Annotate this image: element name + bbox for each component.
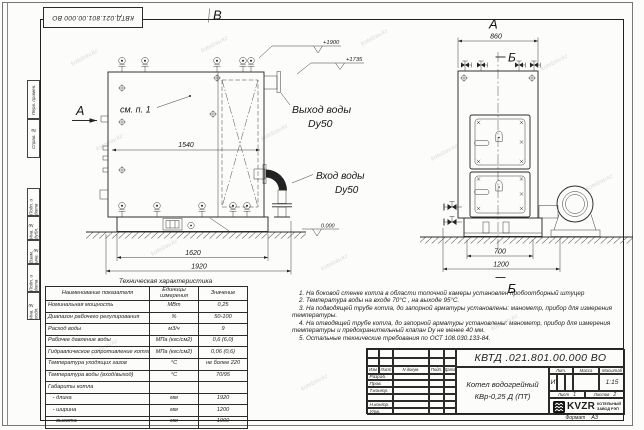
spec-row: Рабочее давление водыМПа (кгс/см2)0,6 (6… — [46, 335, 248, 347]
svg-text:А: А — [75, 104, 84, 118]
scale-label: Масштаб — [599, 367, 625, 374]
revision-grid: Изм Лист N докум. Подп. Дата Разраб. Про… — [367, 349, 456, 415]
svg-text:Dy50: Dy50 — [308, 118, 333, 130]
product-title-line2: КВр-0,25 Д (ПТ) — [475, 391, 531, 403]
document-number: КВТД .021.801.00.000 ВО — [456, 349, 625, 367]
lower-furnace-door — [470, 172, 530, 217]
spec-cell: 1200 — [199, 405, 248, 417]
spec-cell: Гидравлическое сопротивление котла — [46, 347, 150, 359]
spec-cell: мм — [150, 405, 199, 417]
logo-wordmark: KVZR — [567, 401, 595, 412]
safety-valves-top — [119, 57, 255, 72]
spec-table: Техническая характеристика Наименование … — [45, 277, 248, 429]
water-inlet-elbow — [254, 165, 292, 218]
sheet-cell: Лист 1 — [549, 391, 585, 398]
spec-cell: МПа (кгс/см2) — [150, 347, 199, 359]
spec-row: Температура воды (вход/выход)°С70/95 — [46, 370, 248, 382]
spec-cell: % — [150, 312, 199, 324]
spec-cell: Диапазон рабочего регулирования — [46, 312, 150, 324]
spec-cell: 50-100 — [199, 312, 248, 324]
mass-label: Масса — [573, 367, 599, 374]
spec-row: - высотамм1900 — [46, 416, 248, 428]
spec-cell: МПа (кгс/см2) — [150, 335, 199, 347]
spec-cell: °С — [150, 358, 199, 370]
front-view: 860 А Б 700 1200 Б — [420, 17, 633, 297]
spec-cell: Рабочее давление воды — [46, 335, 150, 347]
logo-caption: КОТЕЛЬНЫЙ ЗАВОД РЭП — [597, 402, 621, 411]
svg-text:см. п. 1: см. п. 1 — [120, 105, 151, 115]
format-strip: Формат А3 — [366, 414, 624, 421]
safety-valves-top-front — [461, 61, 541, 71]
format-label: Формат — [565, 415, 585, 421]
scale-value: 1:15 — [599, 374, 625, 391]
spec-cell: МВт — [150, 301, 199, 313]
svg-text:+1735: +1735 — [346, 57, 363, 63]
spec-cell: Температура воды (вход/выход) — [46, 370, 150, 382]
sheets-total: 2 — [613, 392, 616, 398]
svg-text:+1900: +1900 — [323, 40, 340, 46]
sign-label — [367, 394, 393, 401]
spec-cell: 1900 — [199, 416, 248, 428]
spec-cell: Номинальная мощность — [46, 301, 150, 313]
logo-caption-line1: КОТЕЛЬНЫЙ — [597, 402, 621, 406]
spec-header: Значение — [199, 287, 248, 301]
spec-header-row: Наименование показателя Единицы измерени… — [46, 287, 248, 301]
side-connection-valves — [444, 202, 462, 226]
company-logo-cell: KVZR КОТЕЛЬНЫЙ ЗАВОД РЭП — [549, 398, 625, 415]
mass-value — [573, 374, 599, 391]
spec-cell: 0,25 — [199, 301, 248, 313]
sign-label: Разраб. — [367, 374, 393, 381]
sheet-label: Лист — [558, 392, 569, 397]
svg-text:700: 700 — [494, 248, 506, 255]
spec-cell: не более 220 — [199, 358, 248, 370]
upper-furnace-door — [470, 115, 530, 169]
outlet-callout: Выход воды Dy50 — [281, 93, 351, 130]
spec-cell: 70/95 — [199, 370, 248, 382]
rev-header: N докум. — [393, 366, 429, 374]
lit-value: И — [549, 374, 557, 391]
water-outlet-pipe — [264, 72, 281, 93]
rev-header: Подп. — [429, 366, 444, 374]
svg-text:В: В — [213, 8, 222, 23]
note-item: 2. Температура воды на входе 70°С , на в… — [292, 297, 623, 304]
spec-cell: - ширина — [46, 405, 150, 417]
spec-cell: - длина — [46, 393, 150, 405]
spec-row: Номинальная мощностьМВт0,25 — [46, 301, 248, 313]
view-arrow-A: А — [72, 104, 97, 123]
sign-label: Пров. — [367, 380, 393, 387]
title-block: Изм Лист N докум. Подп. Дата Разраб. Про… — [366, 348, 624, 414]
blower-fan — [539, 186, 600, 237]
see-note-callout: см. п. 1 — [120, 95, 191, 115]
spec-row: Гидравлическое сопротивление котлаМПа (к… — [46, 347, 248, 359]
dimension-1920: 1920 — [106, 221, 291, 275]
spec-cell — [199, 382, 248, 394]
elevation-1900: +1900 — [259, 40, 341, 58]
view-label-B: В — [209, 8, 223, 23]
spec-cell: Температура уходящих газов — [46, 358, 150, 370]
ground-hatch — [86, 233, 306, 239]
svg-text:1920: 1920 — [191, 263, 207, 270]
base-frame-front — [464, 218, 542, 237]
boiler-base-frame — [117, 217, 268, 232]
spec-cell: 9 — [199, 324, 248, 336]
spec-cell: мм — [150, 416, 199, 428]
note-item: 4. На отводящей трубе котла, до запорной… — [292, 320, 623, 335]
spec-row: Габариты котла — [46, 382, 248, 394]
svg-text:1620: 1620 — [185, 250, 201, 257]
dimension-860: 860 — [458, 33, 538, 68]
svg-text:1540: 1540 — [178, 142, 194, 149]
elevation-1735: +1735 — [297, 57, 364, 74]
section-mark-B-top: Б — [496, 51, 517, 65]
spec-cell: - высота — [46, 416, 150, 428]
lit-label: Лит. — [549, 367, 573, 374]
sign-label: Т.контр. — [367, 387, 393, 394]
spec-cell: °С — [150, 370, 199, 382]
format-value: А3 — [591, 415, 598, 421]
rev-header: Изм — [367, 366, 379, 374]
inlet-callout: Вход воды Dy50 — [292, 171, 365, 196]
spec-row: Расход водым3/ч9 — [46, 324, 248, 336]
spec-table-title: Техническая характеристика — [45, 277, 248, 286]
rev-header: Дата — [444, 366, 456, 374]
svg-text:Выход воды: Выход воды — [292, 104, 351, 116]
rev-header: Лист — [379, 366, 393, 374]
sheet-number: 1 — [573, 392, 576, 398]
note-item: 5. Остальные технические требования по О… — [292, 335, 623, 342]
spec-cell: 1920 — [199, 393, 248, 405]
spec-row: Диапазон рабочего регулирования%50-100 — [46, 312, 248, 324]
spec-row: Температура уходящих газов°Сне более 220 — [46, 358, 248, 370]
spec-cell: 0,06 (0,6) — [199, 347, 248, 359]
spec-cell: м3/ч — [150, 324, 199, 336]
svg-text:Dy50: Dy50 — [335, 185, 359, 196]
kvzr-logo-icon — [553, 401, 565, 413]
spec-cell — [150, 382, 199, 394]
dimension-1540: 1540 — [112, 142, 260, 150]
spec-cell: мм — [150, 393, 199, 405]
spec-cell: 0,6 (6,0) — [199, 335, 248, 347]
spec-cell: Расход воды — [46, 324, 150, 336]
svg-text:1200: 1200 — [493, 261, 509, 268]
spec-header: Единицы измерения — [150, 287, 199, 301]
svg-text:0.000: 0.000 — [321, 223, 335, 229]
drain-valves-bottom — [119, 202, 251, 217]
sign-label: Н.контр. — [367, 401, 393, 408]
ground-hatch — [420, 238, 633, 244]
drawing-sheet: kotelzav.kz kotelzav.kz kotelzav.kz kote… — [0, 0, 644, 430]
spec-row: - длинамм1920 — [46, 393, 248, 405]
view-label-A: А — [488, 17, 498, 32]
elevation-zero: 0.000 — [302, 223, 339, 236]
technical-notes: 1. На боковой стенке котла в области топ… — [292, 290, 623, 342]
side-view: 1540 1620 1920 +1900 + — [72, 8, 365, 275]
svg-text:Б: Б — [508, 51, 516, 65]
product-title-line1: Котел водогрейный — [466, 379, 538, 391]
spec-header: Наименование показателя — [46, 287, 150, 301]
sheets-cell: Листов 2 — [585, 391, 625, 398]
logo-caption-line2: ЗАВОД РЭП — [597, 407, 619, 411]
svg-text:Вход воды: Вход воды — [316, 171, 365, 182]
spec-cell: Габариты котла — [46, 382, 150, 394]
sheets-label: Листов — [594, 392, 610, 397]
spec-row: - ширинамм1200 — [46, 405, 248, 417]
note-item: 3. На подводящей трубе котла, до запорно… — [292, 305, 623, 320]
product-title: Котел водогрейный КВр-0,25 Д (ПТ) — [456, 367, 549, 415]
svg-text:860: 860 — [490, 33, 502, 40]
